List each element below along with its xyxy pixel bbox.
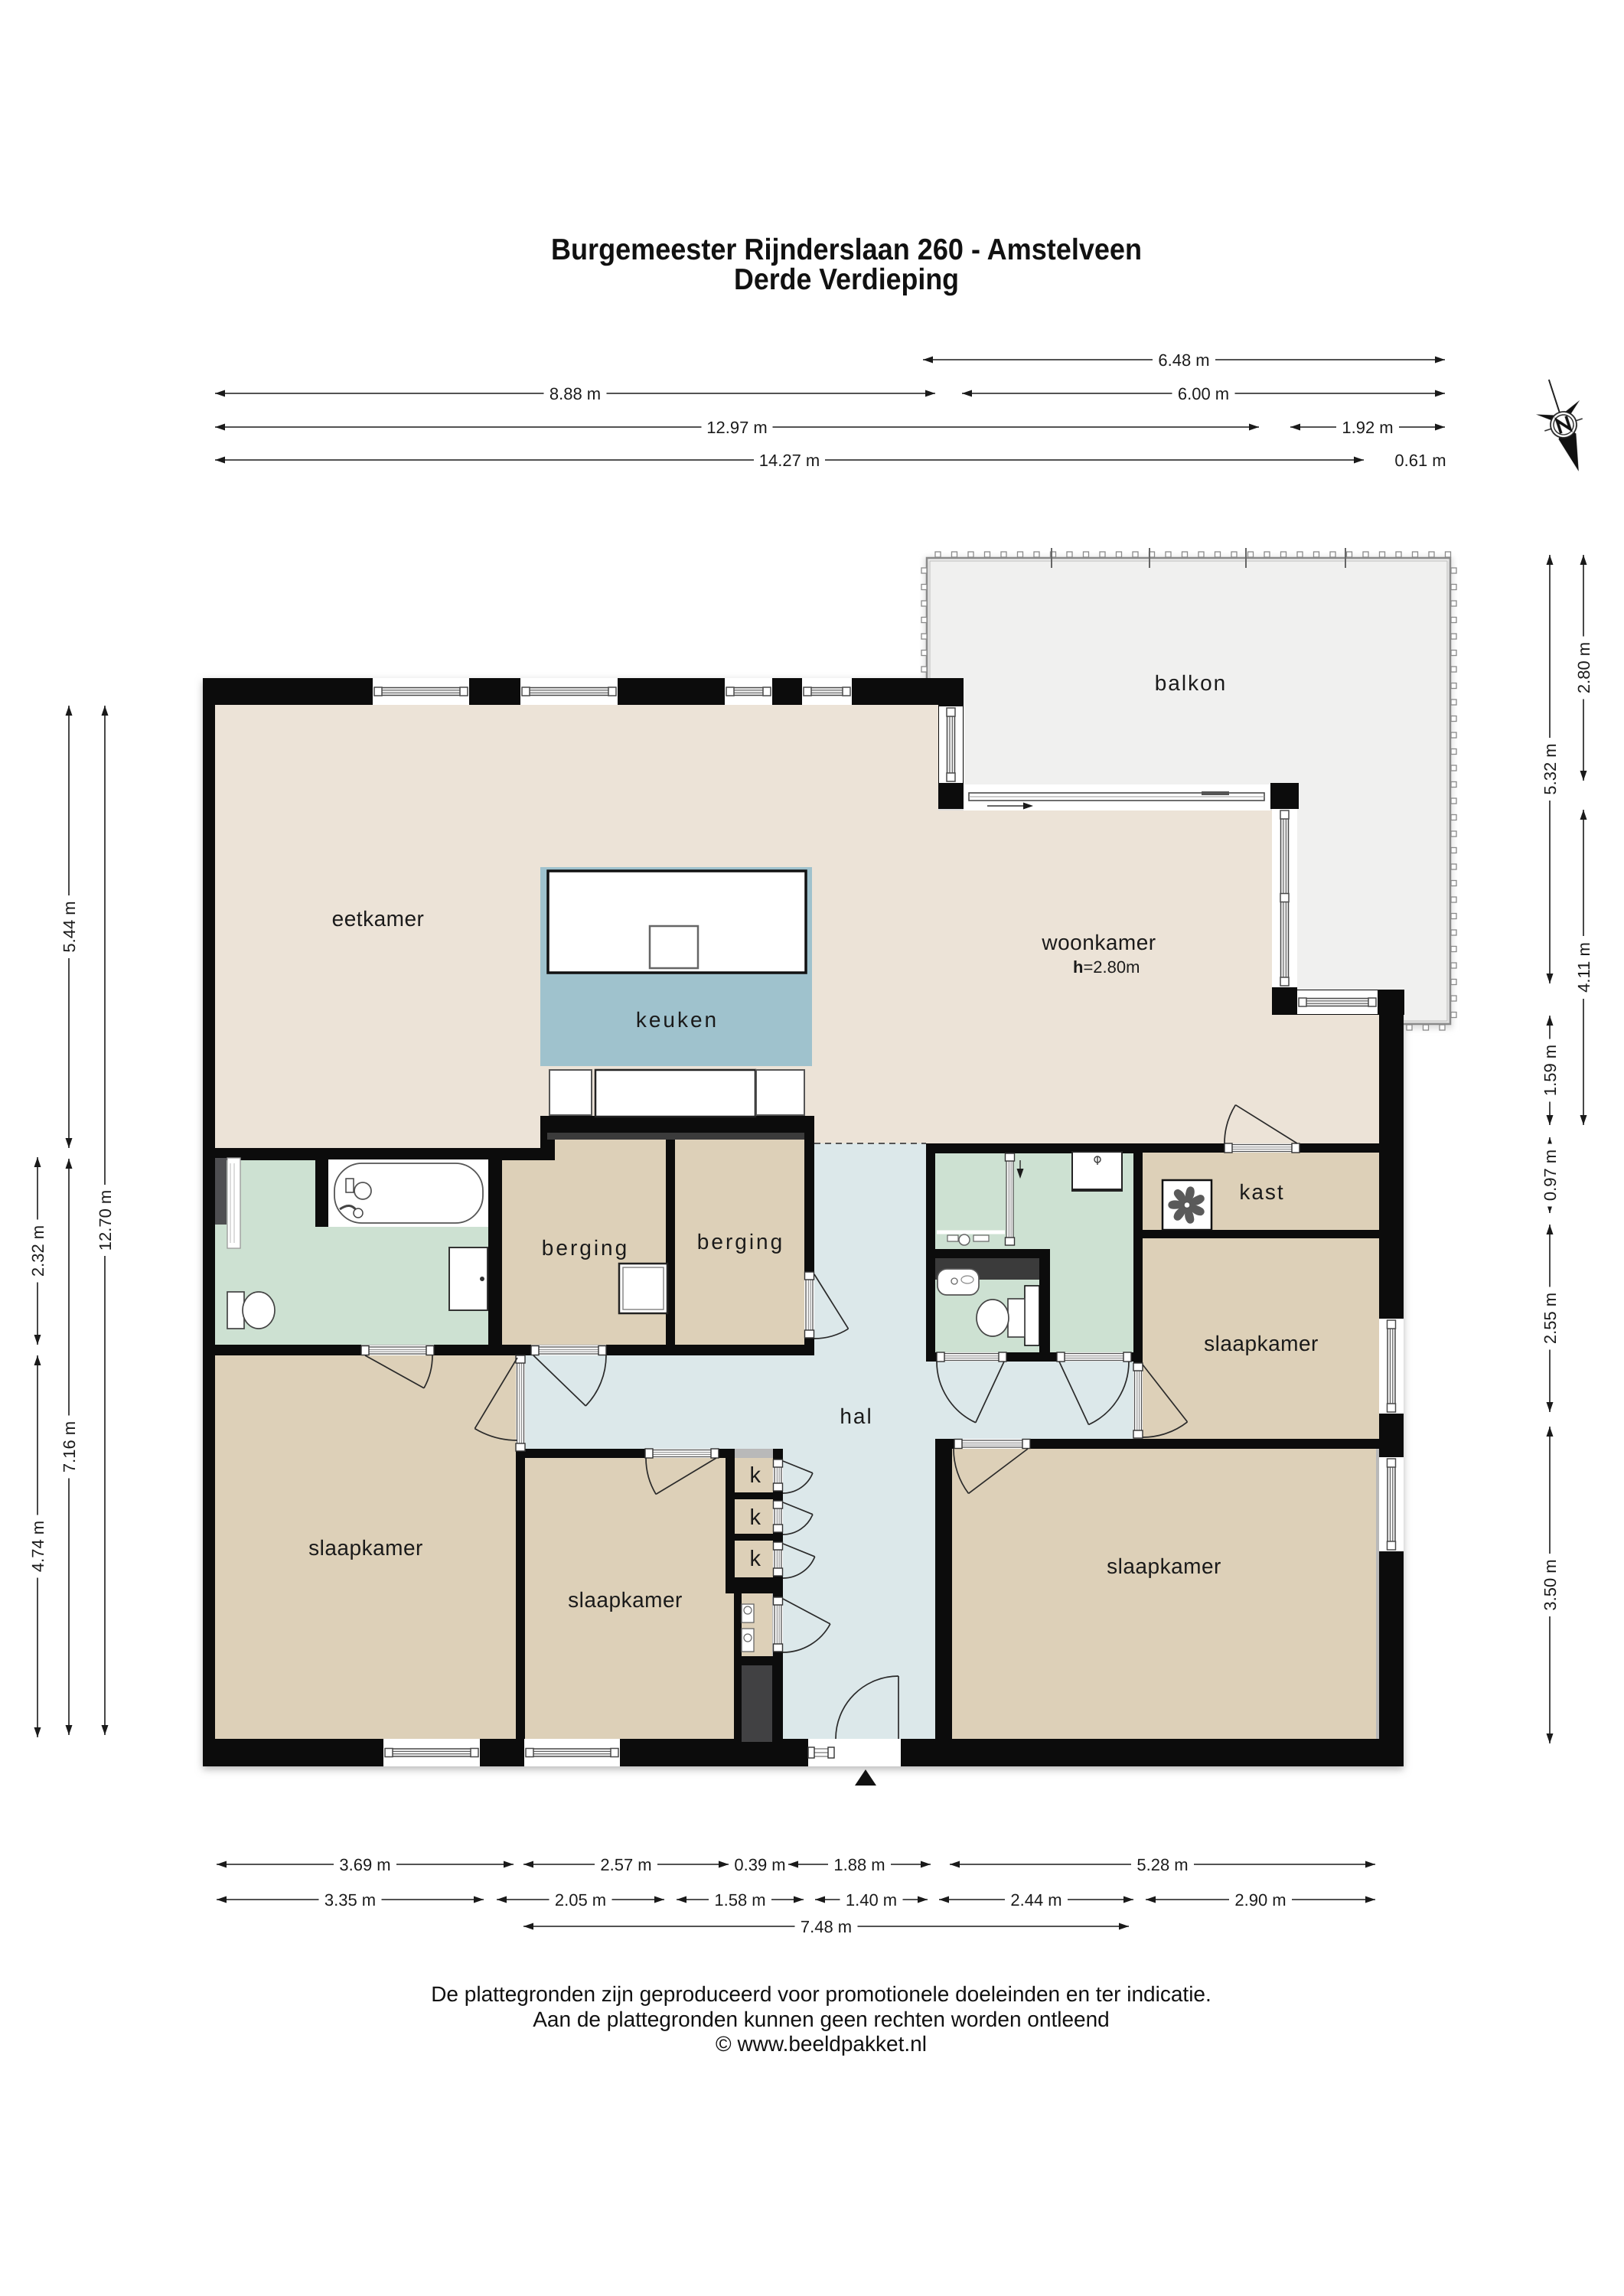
svg-text:kast: kast <box>1239 1180 1284 1204</box>
svg-text:1.92 m: 1.92 m <box>1342 418 1393 437</box>
svg-text:5.28 m: 5.28 m <box>1136 1855 1188 1874</box>
svg-text:12.70 m: 12.70 m <box>96 1190 115 1251</box>
svg-text:eetkamer: eetkamer <box>332 907 425 931</box>
svg-text:k: k <box>750 1505 761 1530</box>
svg-text:2.80 m: 2.80 m <box>1574 642 1593 693</box>
svg-text:8.88 m: 8.88 m <box>549 384 601 403</box>
svg-text:slaapkamer: slaapkamer <box>1107 1554 1221 1578</box>
svg-text:14.27 m: 14.27 m <box>759 451 820 470</box>
svg-text:4.74 m: 4.74 m <box>28 1521 47 1572</box>
svg-text:5.32 m: 5.32 m <box>1541 743 1560 794</box>
svg-text:5.44 m: 5.44 m <box>60 901 79 952</box>
svg-text:2.05 m: 2.05 m <box>555 1890 606 1910</box>
svg-text:woonkamer: woonkamer <box>1041 931 1156 954</box>
svg-text:Aan de plattegronden kunnen ge: Aan de plattegronden kunnen geen rechten… <box>533 2007 1109 2031</box>
svg-text:2.32 m: 2.32 m <box>28 1225 47 1277</box>
svg-text:berging: berging <box>542 1236 629 1260</box>
svg-text:slaapkamer: slaapkamer <box>308 1536 423 1560</box>
svg-text:slaapkamer: slaapkamer <box>1204 1332 1319 1355</box>
svg-text:6.00 m: 6.00 m <box>1178 384 1229 403</box>
svg-text:1.40 m: 1.40 m <box>846 1890 897 1910</box>
svg-text:© www.beeldpakket.nl: © www.beeldpakket.nl <box>716 2032 927 2056</box>
svg-text:3.35 m: 3.35 m <box>324 1890 376 1910</box>
svg-text:2.55 m: 2.55 m <box>1541 1293 1560 1344</box>
svg-text:3.50 m: 3.50 m <box>1541 1559 1560 1610</box>
svg-text:6.48 m: 6.48 m <box>1158 351 1209 370</box>
svg-text:hal: hal <box>840 1404 872 1428</box>
svg-text:2.44 m: 2.44 m <box>1010 1890 1061 1910</box>
svg-text:h=2.80m: h=2.80m <box>1073 957 1140 977</box>
svg-text:balkon: balkon <box>1155 671 1228 695</box>
svg-text:Derde Verdieping: Derde Verdieping <box>734 263 959 296</box>
svg-text:k: k <box>750 1547 761 1571</box>
svg-text:0.39 m: 0.39 m <box>734 1855 785 1874</box>
svg-text:7.16 m: 7.16 m <box>60 1421 79 1473</box>
svg-text:berging: berging <box>697 1230 784 1254</box>
svg-text:0.97 m: 0.97 m <box>1541 1150 1560 1201</box>
svg-text:2.57 m: 2.57 m <box>600 1855 651 1874</box>
svg-text:0.61 m: 0.61 m <box>1394 451 1446 470</box>
svg-text:7.48 m: 7.48 m <box>801 1917 852 1936</box>
svg-text:3.69 m: 3.69 m <box>339 1855 390 1874</box>
svg-text:4.11 m: 4.11 m <box>1574 942 1593 993</box>
svg-text:De plattegronden zijn geproduc: De plattegronden zijn geproduceerd voor … <box>431 1982 1211 2006</box>
svg-text:2.90 m: 2.90 m <box>1234 1890 1286 1910</box>
svg-text:1.88 m: 1.88 m <box>833 1855 885 1874</box>
svg-text:12.97 m: 12.97 m <box>706 418 768 437</box>
svg-text:slaapkamer: slaapkamer <box>568 1588 683 1612</box>
svg-text:Burgemeester Rijnderslaan 260: Burgemeester Rijnderslaan 260 - Amstelve… <box>551 233 1142 266</box>
svg-text:k: k <box>750 1463 761 1488</box>
svg-text:keuken: keuken <box>636 1008 719 1032</box>
svg-text:1.59 m: 1.59 m <box>1541 1045 1560 1096</box>
svg-text:1.58 m: 1.58 m <box>714 1890 765 1910</box>
